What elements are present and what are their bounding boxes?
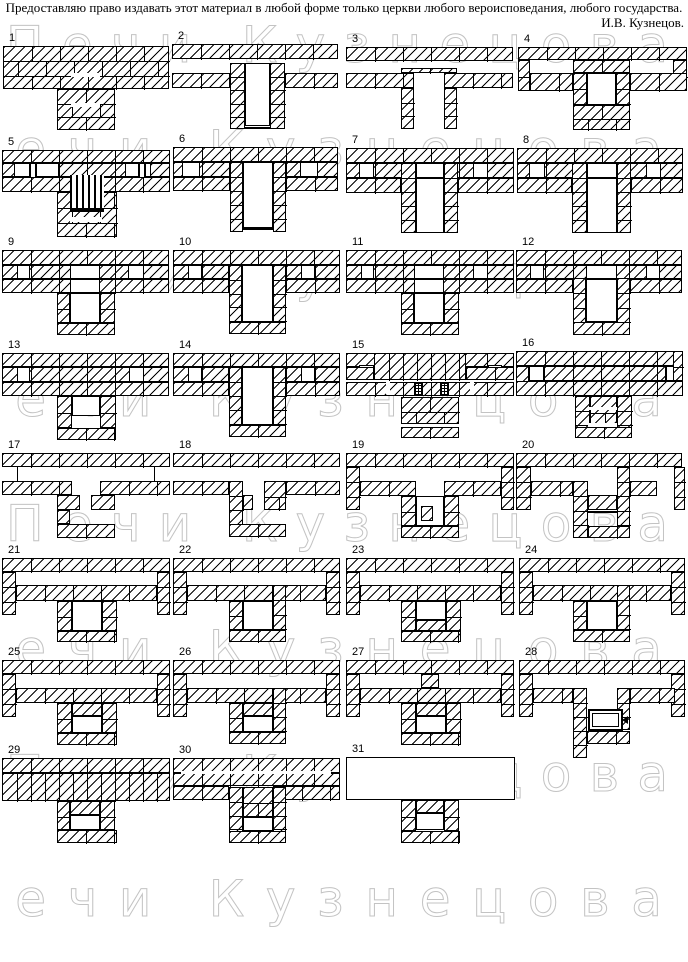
brick-block xyxy=(401,733,461,745)
flue-channel xyxy=(243,817,273,831)
brick-block xyxy=(57,830,117,843)
flue-channel xyxy=(70,217,102,222)
flue-channel xyxy=(586,265,617,279)
brick-block xyxy=(501,467,514,510)
flue-channel xyxy=(587,73,616,105)
flue-channel xyxy=(588,407,617,410)
brick-block xyxy=(401,397,459,424)
brick-block xyxy=(243,703,273,716)
flue-channel xyxy=(587,163,617,178)
brick-block xyxy=(360,481,416,496)
flue-channel xyxy=(17,265,30,279)
brick-block xyxy=(572,163,587,233)
brick-block xyxy=(286,279,340,293)
brick-block xyxy=(360,585,501,601)
brick-block xyxy=(102,703,117,733)
brick-block xyxy=(458,178,514,193)
flue-channel xyxy=(71,103,100,107)
course-number: 4 xyxy=(524,33,530,45)
brick-block xyxy=(157,572,170,615)
brick-block xyxy=(173,453,340,467)
license-note: Предоставляю право издавать этот материа… xyxy=(0,0,688,15)
flue-channel xyxy=(529,366,544,381)
course-number: 24 xyxy=(525,544,537,556)
small-grate xyxy=(414,383,423,396)
flue-channel xyxy=(242,265,273,322)
brick-block xyxy=(573,481,588,538)
brick-block xyxy=(173,250,340,265)
brick-block xyxy=(517,178,572,193)
flue-channel xyxy=(129,367,144,382)
stove-plans-page: { "page": {"width": 688, "height": 962, … xyxy=(0,0,688,962)
brick-block xyxy=(401,831,460,843)
brick-block xyxy=(2,250,169,265)
brick-block xyxy=(360,688,501,703)
flue-channel xyxy=(359,163,374,178)
brick-block xyxy=(57,396,72,428)
brick-block xyxy=(100,801,115,830)
brick-block xyxy=(346,382,514,396)
brick-block xyxy=(516,279,573,293)
brick-block xyxy=(516,351,682,366)
flue-channel xyxy=(245,63,270,126)
brick-block xyxy=(2,353,169,367)
brick-block xyxy=(286,177,338,191)
brick-block xyxy=(617,163,631,233)
brick-block xyxy=(286,481,340,495)
brick-block xyxy=(530,73,573,91)
brick-block xyxy=(173,382,229,396)
brick-block xyxy=(57,495,80,510)
brick-block xyxy=(518,47,687,60)
course-number: 31 xyxy=(352,743,364,755)
brick-block xyxy=(346,572,360,615)
brick-block xyxy=(531,481,573,496)
brick-block xyxy=(187,585,326,601)
flue-channel xyxy=(72,601,102,631)
course-number: 26 xyxy=(179,646,191,658)
brick-block xyxy=(466,367,514,380)
brick-block xyxy=(173,773,340,786)
brick-block xyxy=(173,558,340,572)
brick-block xyxy=(57,733,117,745)
door-handle-icon xyxy=(622,716,628,724)
brick-block xyxy=(57,703,72,733)
brick-block xyxy=(519,572,533,615)
door-frame xyxy=(592,713,619,727)
course-number: 9 xyxy=(8,236,14,248)
flue-channel xyxy=(70,293,100,323)
brick-block xyxy=(346,178,401,193)
flue-channel xyxy=(243,716,273,732)
brick-block xyxy=(2,572,16,615)
flue-channel xyxy=(243,601,273,630)
flue-channel xyxy=(530,265,544,279)
brick-block xyxy=(401,88,414,129)
flue-channel xyxy=(416,178,444,233)
brick-block xyxy=(326,674,340,717)
brick-block xyxy=(100,293,115,323)
author-signature: И.В. Кузнецов. xyxy=(601,15,684,30)
course-number: 19 xyxy=(352,439,364,451)
brick-block xyxy=(230,162,243,232)
brick-block xyxy=(630,279,682,293)
brick-block xyxy=(401,800,416,831)
brick-block xyxy=(72,703,102,716)
brick-block xyxy=(533,688,573,703)
brick-block xyxy=(630,481,657,496)
brick-block xyxy=(229,831,286,843)
brick-block xyxy=(173,279,229,293)
flue-channel xyxy=(646,265,660,279)
course-number: 14 xyxy=(179,339,191,351)
brick-block xyxy=(573,688,587,758)
flue-channel xyxy=(300,162,318,177)
brick-block xyxy=(446,703,461,733)
vertical-brick-block xyxy=(2,773,170,801)
brick-block xyxy=(446,601,461,631)
flue-channel xyxy=(473,163,488,178)
brick-block xyxy=(346,73,414,88)
flue-channel xyxy=(473,265,488,279)
brick-block xyxy=(57,601,72,631)
brick-block xyxy=(516,250,682,265)
brick-block xyxy=(346,558,514,572)
grate xyxy=(29,164,37,177)
flue-channel xyxy=(529,163,545,178)
brick-block xyxy=(631,178,683,193)
flue-channel xyxy=(414,279,444,293)
course-number: 23 xyxy=(352,544,364,556)
brick-block xyxy=(346,660,514,674)
brick-block xyxy=(91,495,115,510)
solid-line xyxy=(154,467,155,481)
brick-block xyxy=(630,688,675,703)
grate xyxy=(138,164,146,177)
flue-channel xyxy=(361,265,374,279)
brick-block xyxy=(630,73,687,91)
course-number: 13 xyxy=(8,339,20,351)
flue-channel xyxy=(70,279,100,293)
flue-channel xyxy=(416,601,446,620)
brick-block xyxy=(401,526,459,538)
brick-block xyxy=(401,293,414,323)
page-header: Предоставляю право издавать этот материа… xyxy=(0,0,688,15)
brick-block xyxy=(3,46,169,89)
course-number: 17 xyxy=(8,439,20,451)
course-number: 5 xyxy=(8,136,14,148)
brick-block xyxy=(516,453,682,467)
flue-channel xyxy=(70,815,100,830)
brick-block xyxy=(518,60,530,91)
brick-block xyxy=(326,572,340,615)
course-number: 10 xyxy=(179,236,191,248)
brick-block xyxy=(229,732,286,744)
flue-channel xyxy=(242,367,273,425)
plain-slab xyxy=(346,757,515,800)
brick-block xyxy=(229,322,286,334)
brick-block xyxy=(573,60,630,73)
brick-block xyxy=(16,688,157,703)
flue-channel xyxy=(416,716,446,733)
brick-block xyxy=(102,601,117,631)
flue-channel xyxy=(416,813,444,830)
course-number: 16 xyxy=(522,337,534,349)
solid-line xyxy=(70,208,104,212)
brick-block xyxy=(416,620,446,631)
brick-block xyxy=(100,396,116,428)
brick-block xyxy=(173,481,229,495)
brick-block xyxy=(401,496,416,526)
flue-channel xyxy=(301,367,315,382)
flue-channel xyxy=(181,771,331,774)
course-number: 7 xyxy=(352,134,358,146)
brick-block xyxy=(516,467,531,510)
brick-block xyxy=(444,800,459,831)
flue-channel xyxy=(70,265,100,279)
flue-channel xyxy=(188,367,202,382)
brick-block xyxy=(517,148,683,163)
brick-block xyxy=(57,89,115,130)
flue-channel xyxy=(646,163,661,178)
brick-block xyxy=(2,558,170,572)
brick-block xyxy=(172,73,230,88)
flue-channel xyxy=(243,162,273,228)
brick-block xyxy=(2,382,169,396)
flue-channel xyxy=(587,601,617,630)
brick-block xyxy=(573,105,630,130)
brick-block xyxy=(57,510,70,524)
brick-block xyxy=(444,163,458,233)
brick-block xyxy=(57,524,115,538)
brick-block xyxy=(285,73,338,88)
brick-block xyxy=(519,558,685,572)
brick-block xyxy=(516,381,683,396)
flue-channel xyxy=(386,382,390,394)
course-number: 28 xyxy=(525,646,537,658)
brick-block xyxy=(2,150,170,163)
solid-line xyxy=(243,228,273,230)
brick-block xyxy=(57,801,70,830)
brick-block xyxy=(2,674,16,717)
brick-block xyxy=(346,250,514,265)
course-number: 12 xyxy=(522,236,534,248)
brick-block xyxy=(173,147,338,162)
course-number: 2 xyxy=(178,30,184,42)
brick-block xyxy=(172,44,338,59)
brick-block xyxy=(187,688,326,703)
brick-block xyxy=(573,630,630,642)
brick-block xyxy=(401,703,416,733)
brick-block xyxy=(444,73,513,88)
brick-block xyxy=(230,63,245,129)
brick-block xyxy=(346,367,374,380)
course-number: 20 xyxy=(522,439,534,451)
flue-channel xyxy=(416,163,444,178)
flue-channel xyxy=(301,265,315,279)
course-number: 29 xyxy=(8,744,20,756)
brick-block xyxy=(2,660,170,674)
flue-channel xyxy=(128,265,144,279)
brick-block xyxy=(544,366,666,381)
course-number: 1 xyxy=(9,32,15,44)
flue-channel xyxy=(72,396,100,416)
brick-block xyxy=(264,481,286,510)
vertical-brick-block xyxy=(374,353,466,380)
brick-block xyxy=(16,585,157,601)
brick-block xyxy=(273,162,286,232)
brick-block xyxy=(229,425,286,437)
grate xyxy=(70,175,104,208)
brick-block xyxy=(401,631,461,642)
solid-line xyxy=(588,511,617,513)
brick-block xyxy=(270,63,285,129)
course-number: 25 xyxy=(8,646,20,658)
brick-block xyxy=(588,526,630,538)
brick-block xyxy=(173,353,340,367)
flue-channel xyxy=(414,265,444,279)
course-number: 8 xyxy=(523,134,529,146)
brick-block xyxy=(501,674,514,717)
brick-block xyxy=(519,660,685,674)
flue-channel xyxy=(17,367,30,382)
course-number: 11 xyxy=(352,236,363,248)
brick-block xyxy=(671,572,685,615)
brick-block xyxy=(673,351,683,381)
brick-block xyxy=(421,674,439,688)
brick-block xyxy=(173,786,229,800)
course-diagrams: 1234567891011121314151617181920212223242… xyxy=(0,0,688,962)
brick-block xyxy=(243,495,253,510)
brick-block xyxy=(416,800,444,813)
flue-channel xyxy=(470,382,474,394)
brick-block xyxy=(444,293,459,323)
course-number: 15 xyxy=(352,339,364,351)
course-number: 18 xyxy=(179,439,191,451)
cleanout-door xyxy=(588,709,623,731)
solid-line xyxy=(17,467,18,481)
brick-block xyxy=(346,453,514,467)
brick-block xyxy=(229,630,286,642)
flue-channel xyxy=(182,162,200,177)
brick-block xyxy=(519,674,533,717)
course-number: 22 xyxy=(179,544,191,556)
flue-channel xyxy=(188,265,202,279)
course-number: 27 xyxy=(352,646,364,658)
brick-block xyxy=(501,572,514,615)
brick-block xyxy=(346,467,360,510)
brick-block xyxy=(401,163,416,233)
brick-block xyxy=(587,731,630,744)
brick-block xyxy=(157,674,170,717)
brick-block xyxy=(401,323,459,335)
course-number: 6 xyxy=(179,133,185,145)
brick-block xyxy=(346,47,513,61)
brick-block xyxy=(588,495,617,510)
brick-block xyxy=(57,323,115,335)
brick-block xyxy=(573,322,630,335)
brick-block xyxy=(173,572,187,615)
brick-block xyxy=(173,674,187,717)
brick-block xyxy=(444,496,459,526)
flue-channel xyxy=(414,293,444,323)
brick-block xyxy=(57,293,70,323)
brick-block xyxy=(533,585,671,601)
brick-block xyxy=(286,382,340,396)
brick-block xyxy=(674,467,685,510)
brick-block xyxy=(421,506,433,521)
course-number: 21 xyxy=(8,544,20,556)
brick-block xyxy=(57,631,117,642)
solid-line xyxy=(245,127,270,129)
brick-block xyxy=(2,758,170,773)
brick-block xyxy=(575,427,632,438)
flue-channel xyxy=(586,279,617,322)
brick-block xyxy=(401,427,459,438)
course-number: 3 xyxy=(352,33,358,45)
flue-channel xyxy=(72,716,102,733)
brick-block xyxy=(70,801,100,815)
flue-channel xyxy=(587,178,617,233)
flue-channel xyxy=(71,73,100,77)
brick-block xyxy=(229,524,286,537)
course-number: 30 xyxy=(179,744,191,756)
brick-block xyxy=(416,703,446,716)
brick-block xyxy=(2,453,170,467)
brick-block xyxy=(444,481,501,496)
brick-block xyxy=(2,481,72,495)
brick-block xyxy=(444,88,457,129)
brick-block xyxy=(346,674,360,717)
brick-block xyxy=(57,428,116,440)
brick-block xyxy=(173,660,340,674)
brick-block xyxy=(243,787,273,817)
brick-block xyxy=(346,148,514,163)
brick-block xyxy=(173,177,230,191)
small-grate xyxy=(440,383,449,396)
brick-block xyxy=(100,481,170,495)
brick-block xyxy=(401,601,416,631)
